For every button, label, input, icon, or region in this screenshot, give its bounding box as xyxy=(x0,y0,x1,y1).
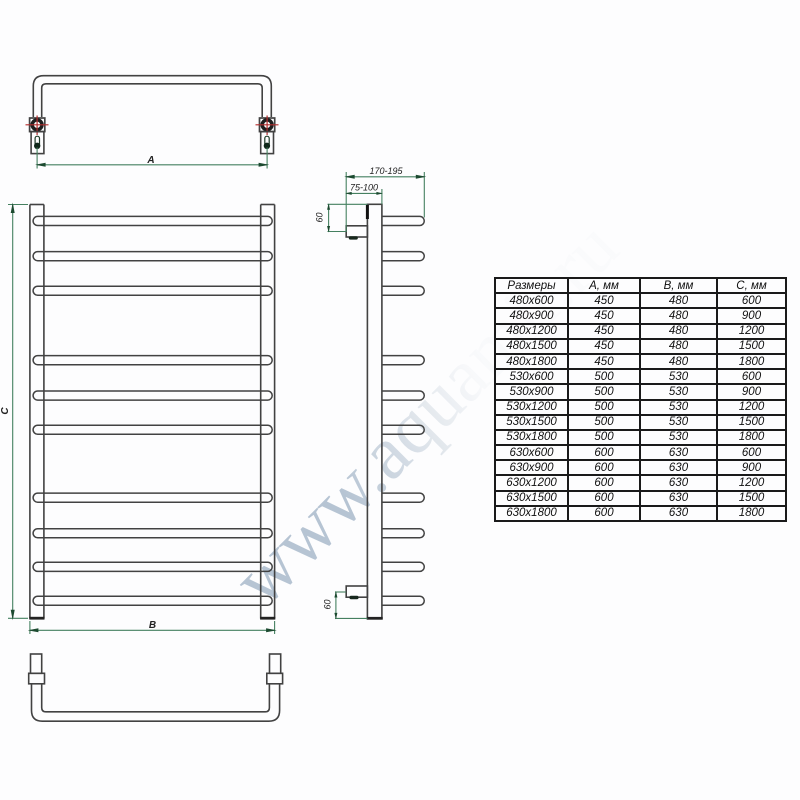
svg-text:75-100: 75-100 xyxy=(350,183,378,193)
svg-text:60: 60 xyxy=(323,599,333,609)
svg-text:170-195: 170-195 xyxy=(369,166,403,176)
svg-text:A: A xyxy=(146,155,154,166)
svg-text:B: B xyxy=(149,620,156,631)
svg-text:C: C xyxy=(0,407,11,415)
svg-text:60: 60 xyxy=(314,212,324,222)
